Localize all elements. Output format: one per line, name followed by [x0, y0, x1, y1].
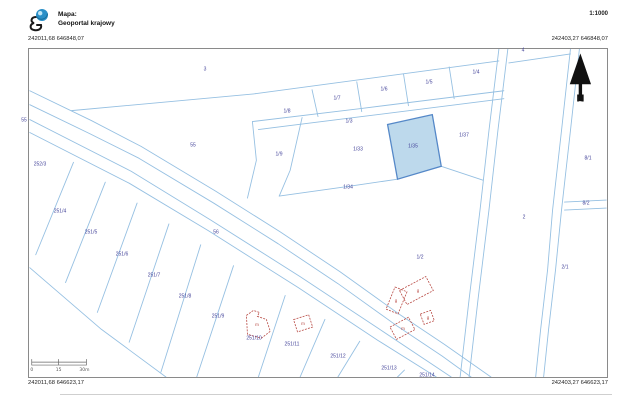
- map-scale-text: 1:1000: [589, 11, 608, 17]
- building-outline: [386, 287, 407, 314]
- coordinate-top-right: 242403,27 646848,07: [552, 36, 608, 42]
- building-outline: [246, 310, 270, 338]
- scale-bar: 0 15 30m: [30, 359, 89, 373]
- scale-bar-start: 0: [30, 367, 33, 373]
- scale-bar-middle: 15: [56, 367, 62, 373]
- geoportal-map-sheet: Mapa: Geoportal krajowy 1:1000 242011,68…: [0, 0, 620, 400]
- parcel-label: 55: [21, 119, 27, 124]
- app-title: Mapa: Geoportal krajowy: [58, 7, 115, 29]
- header: Mapa: Geoportal krajowy: [28, 7, 115, 37]
- map-label: Mapa:: [58, 11, 115, 20]
- building-outline: [294, 315, 313, 332]
- north-arrow: N: [570, 55, 590, 105]
- coordinate-top-left: 242011,68 646848,07: [28, 36, 84, 42]
- coordinate-bottom-right: 242403,27 646623,17: [552, 380, 608, 386]
- highlighted-parcel[interactable]: [388, 115, 442, 180]
- geoportal-logo-icon: [28, 7, 52, 37]
- parcel-boundary-lines: [30, 49, 606, 377]
- building-outlines: [246, 277, 434, 340]
- coordinate-bottom-left: 242011,68 646623,17: [28, 380, 84, 386]
- building-outline: [420, 310, 434, 324]
- building-outline: [390, 317, 415, 339]
- footer-divider: [60, 394, 612, 395]
- cadastral-map: N 0 15 30m: [29, 49, 607, 377]
- map-name: Geoportal krajowy: [58, 20, 115, 29]
- scale-bar-end: 30m: [79, 367, 89, 373]
- north-arrow-label: N: [576, 94, 584, 105]
- map-canvas: N 0 15 30m: [28, 48, 608, 378]
